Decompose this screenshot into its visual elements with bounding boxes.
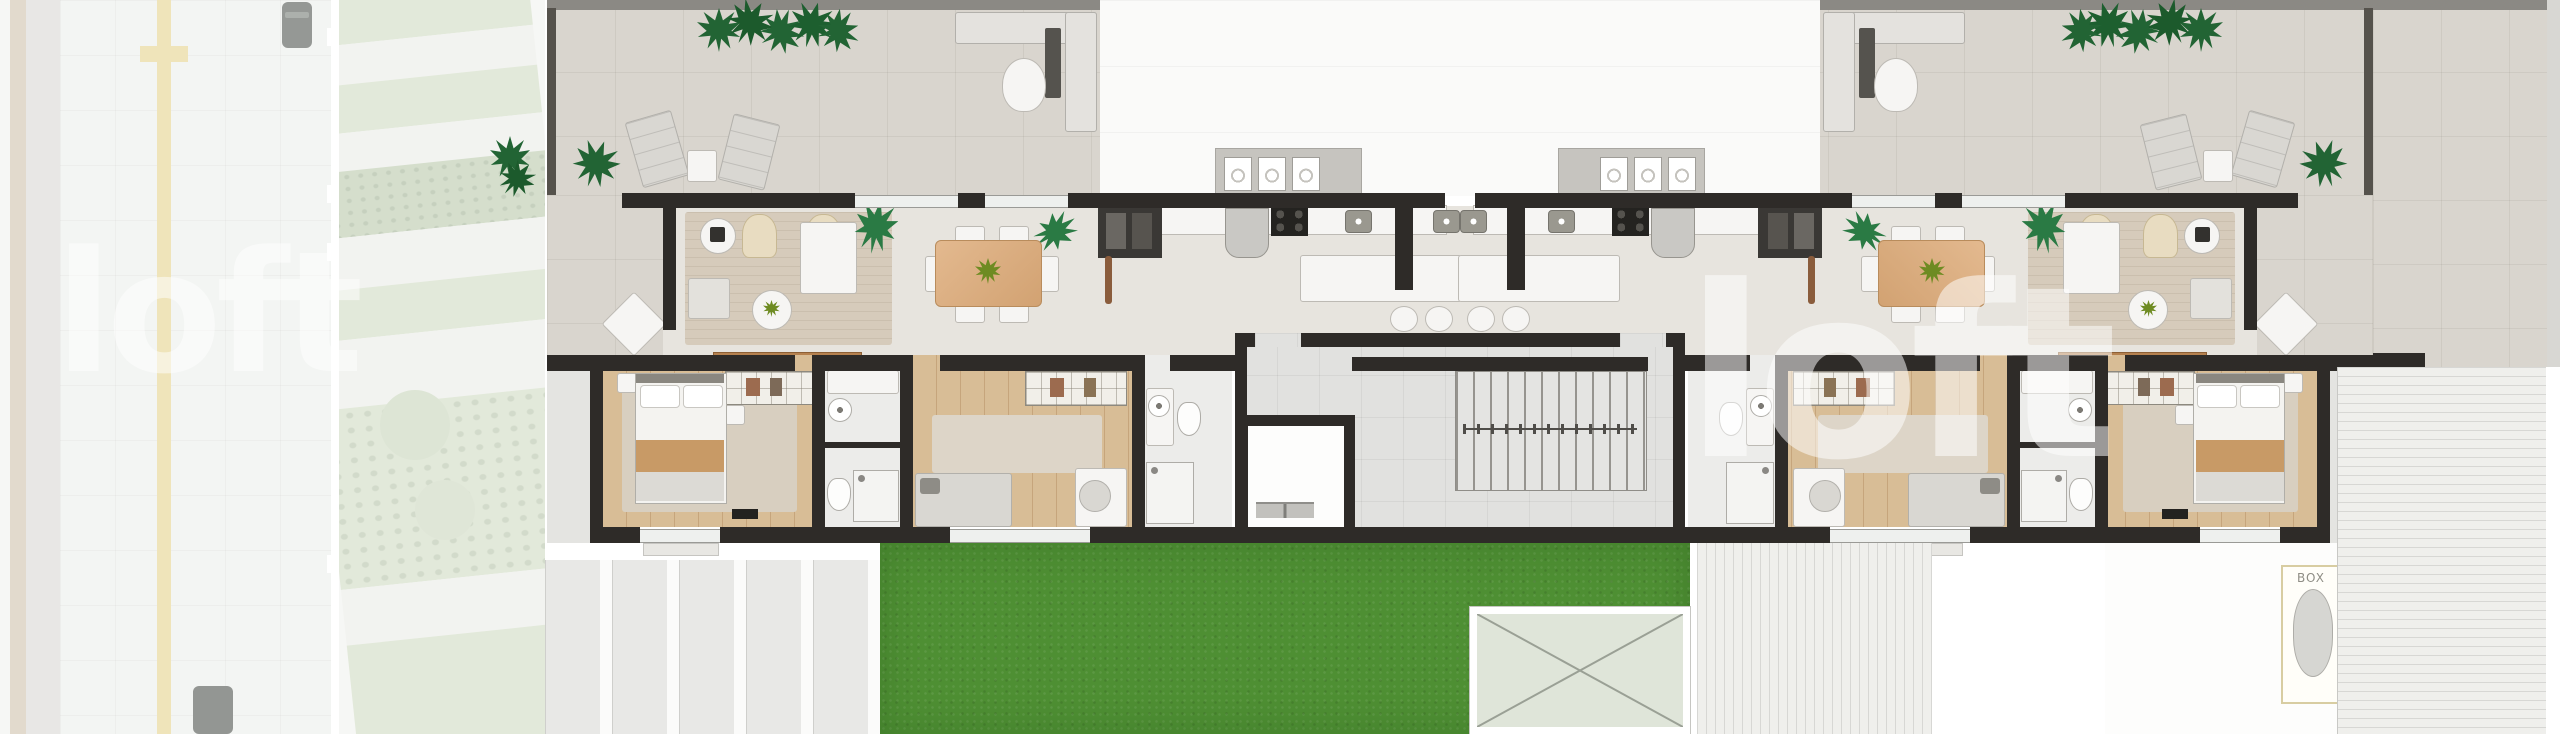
window [640, 529, 720, 543]
wall [812, 355, 825, 527]
crosswalk-line [331, 0, 339, 734]
wall [2317, 355, 2330, 543]
kitchen-sink [1548, 210, 1575, 233]
side-deck [2337, 367, 2546, 734]
desk-drawer [1859, 28, 1875, 98]
shower-box-label: BOX [2283, 571, 2339, 585]
wall [1352, 357, 1648, 371]
site-sidewalk [26, 0, 60, 734]
coffee-table [2190, 278, 2232, 319]
armchair [742, 214, 777, 258]
wall [2125, 355, 2373, 371]
wardrobe [1025, 371, 1127, 406]
bar-stool [1502, 306, 1530, 332]
wall [1235, 527, 1685, 543]
daybed [915, 473, 1012, 527]
wall [2244, 206, 2257, 330]
laundry-sink [1433, 210, 1460, 233]
kitchen-sink [1345, 210, 1372, 233]
daybed [1908, 473, 2005, 527]
site-plan [0, 0, 545, 734]
bath-cabinet [2021, 370, 2093, 394]
side-yard [547, 367, 590, 543]
wall [1970, 527, 2200, 543]
shower [853, 470, 899, 522]
desk-drawer [1045, 28, 1061, 98]
laundry-counter [1215, 148, 1362, 198]
bath-cabinet [827, 370, 899, 394]
shower [1726, 462, 1774, 524]
side-table [2203, 150, 2233, 182]
wall [663, 206, 676, 330]
wall [1775, 355, 1788, 527]
toilet [1177, 402, 1201, 436]
pergola-deck [545, 560, 880, 734]
floor-plan-canvas: BOX loft loft [0, 0, 2560, 734]
washer [1224, 157, 1252, 191]
wall [2010, 355, 2095, 371]
media-device [710, 227, 725, 242]
wardrobe [2105, 371, 2195, 405]
wall [900, 355, 913, 527]
washbasin [828, 398, 852, 422]
wall [1935, 193, 1962, 208]
landscape-strip [339, 0, 545, 734]
wall [1507, 193, 1525, 290]
nightstand [2175, 405, 2195, 425]
parked-car [282, 2, 312, 48]
washbasin [1148, 395, 1170, 417]
shower [2021, 470, 2067, 522]
washbasin [2068, 398, 2092, 422]
laundry-counter [1558, 148, 1705, 198]
tv [2162, 509, 2188, 519]
headboard [636, 374, 724, 383]
window [2200, 529, 2280, 543]
wall [2007, 355, 2020, 527]
stair-handrail [1463, 424, 1637, 434]
headboard [2196, 374, 2284, 383]
wall [1132, 355, 1145, 527]
kitchen-cabinet [1098, 205, 1162, 258]
desk-chair [1874, 58, 1918, 112]
open-door [1808, 256, 1815, 304]
bar-stool [1425, 306, 1453, 332]
window [950, 529, 1090, 543]
road-center-line [157, 0, 171, 734]
open-door [1105, 256, 1112, 304]
bedroom-rug [932, 415, 1102, 473]
wall [1235, 333, 1685, 347]
bathtub [2293, 589, 2333, 677]
double-bed [635, 373, 727, 504]
window [1852, 195, 1935, 208]
pillow [2240, 385, 2280, 408]
wall [958, 193, 985, 208]
core-door-gap [1255, 333, 1301, 347]
road-marking [140, 46, 188, 62]
window [855, 195, 958, 208]
boardwalk [1697, 543, 1932, 734]
coffee-table [688, 278, 730, 319]
toilet [827, 478, 851, 511]
pillow [683, 385, 723, 408]
bar-stool [1467, 306, 1495, 332]
site-right-strip [2547, 0, 2560, 367]
dining-chair [1039, 256, 1059, 292]
cross-lines [1477, 614, 1683, 727]
wall [2280, 527, 2330, 543]
breakfast-bar [1458, 255, 1620, 302]
side-table [687, 150, 717, 182]
washer [1600, 157, 1628, 191]
wall [824, 442, 900, 448]
shower [1146, 462, 1194, 524]
washer [1292, 157, 1320, 191]
elevator-doors [1256, 502, 1314, 518]
desk-chair [1002, 58, 1046, 112]
double-bed [2193, 373, 2285, 504]
window-sill [643, 543, 719, 556]
tv [732, 509, 758, 519]
wall [1090, 527, 1235, 543]
window [1962, 195, 2065, 208]
cooktop [1612, 205, 1649, 236]
chaise-sofa [800, 222, 857, 294]
wall [547, 355, 795, 371]
window [985, 195, 1068, 208]
wall [1685, 355, 1750, 371]
core-door-gap [1620, 333, 1666, 347]
wall [720, 527, 950, 543]
office-chair [1079, 480, 1111, 512]
refrigerator [1651, 208, 1695, 258]
planter-row [697, 0, 857, 56]
wall [2020, 442, 2096, 448]
terrace-right-extension [2373, 8, 2547, 367]
kitchen-cabinet [1758, 205, 1822, 258]
office-chair [1809, 480, 1841, 512]
wall [547, 8, 556, 208]
wall [940, 355, 1140, 371]
toilet [1719, 402, 1743, 436]
site-edge-strip [10, 0, 26, 734]
washer [1668, 157, 1696, 191]
laundry-sink [1460, 210, 1487, 233]
breakfast-bar [1300, 255, 1462, 302]
blanket [2196, 440, 2284, 472]
paved-cross-area [1470, 607, 1690, 734]
wall [1685, 527, 1830, 543]
refrigerator [1225, 208, 1269, 258]
wardrobe [1793, 371, 1895, 406]
wall [1475, 193, 1852, 208]
desk [1065, 12, 1097, 132]
bedroom-rug [1818, 415, 1988, 473]
planter-row [2063, 0, 2223, 56]
wall [825, 355, 910, 371]
nightstand [2283, 373, 2303, 393]
wall [1068, 193, 1445, 208]
pillow [640, 385, 680, 408]
wall [2373, 0, 2547, 10]
site-tree [415, 480, 475, 540]
pillow [2197, 385, 2237, 408]
wall [590, 527, 640, 543]
blanket [636, 440, 724, 472]
wall [2065, 193, 2298, 208]
nightstand [725, 405, 745, 425]
wall [590, 355, 603, 543]
wall [1395, 193, 1413, 290]
armchair [2143, 214, 2178, 258]
street [60, 0, 333, 734]
parked-car [193, 686, 233, 734]
window [1830, 529, 1970, 543]
chaise-sofa [2063, 222, 2120, 294]
toilet [2069, 478, 2093, 511]
desk [1823, 12, 1855, 132]
wall [2373, 353, 2425, 367]
washer [1634, 157, 1662, 191]
wall [2095, 355, 2108, 527]
nightstand [617, 373, 637, 393]
wall [1780, 355, 1980, 371]
cooktop [1271, 205, 1308, 236]
site-tree [380, 390, 450, 460]
bed-foot [636, 472, 724, 501]
wall [1673, 333, 1685, 543]
media-device [2195, 227, 2210, 242]
bar-stool [1390, 306, 1418, 332]
wall [1170, 355, 1235, 371]
bed-foot [2196, 472, 2284, 501]
shower-box: BOX [2281, 565, 2341, 704]
washbasin [1750, 395, 1772, 417]
washer [1258, 157, 1286, 191]
wardrobe [725, 371, 815, 405]
wall [622, 193, 855, 208]
wall [2364, 8, 2373, 208]
